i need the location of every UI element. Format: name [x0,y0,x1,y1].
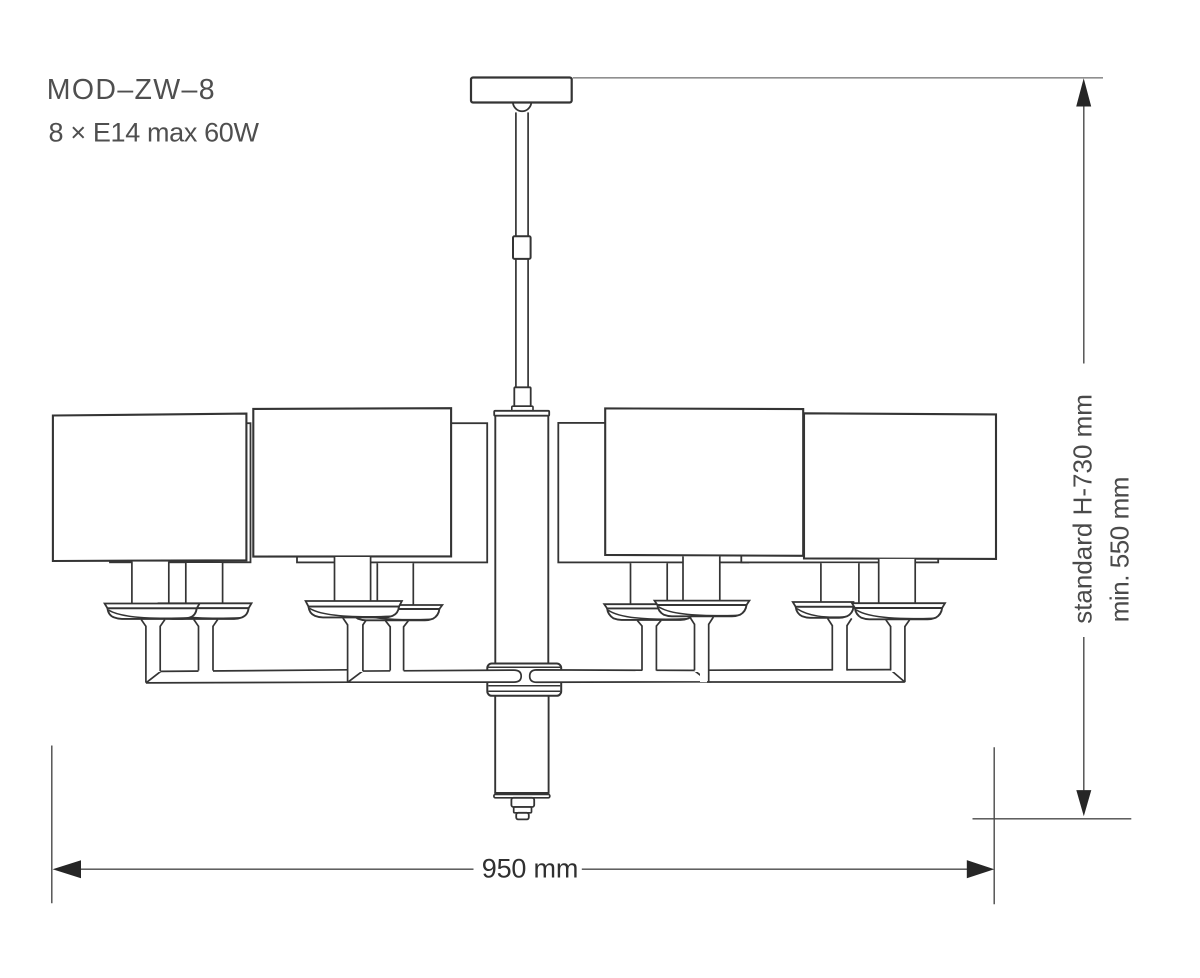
svg-text:standard H-730 mm: standard H-730 mm [1068,394,1098,624]
svg-text:8 × E14 max 60W: 8 × E14 max 60W [49,117,260,147]
svg-text:950 mm: 950 mm [482,853,578,883]
svg-text:MOD–ZW–8: MOD–ZW–8 [47,74,216,106]
svg-text:min. 550 mm: min. 550 mm [1105,477,1135,622]
